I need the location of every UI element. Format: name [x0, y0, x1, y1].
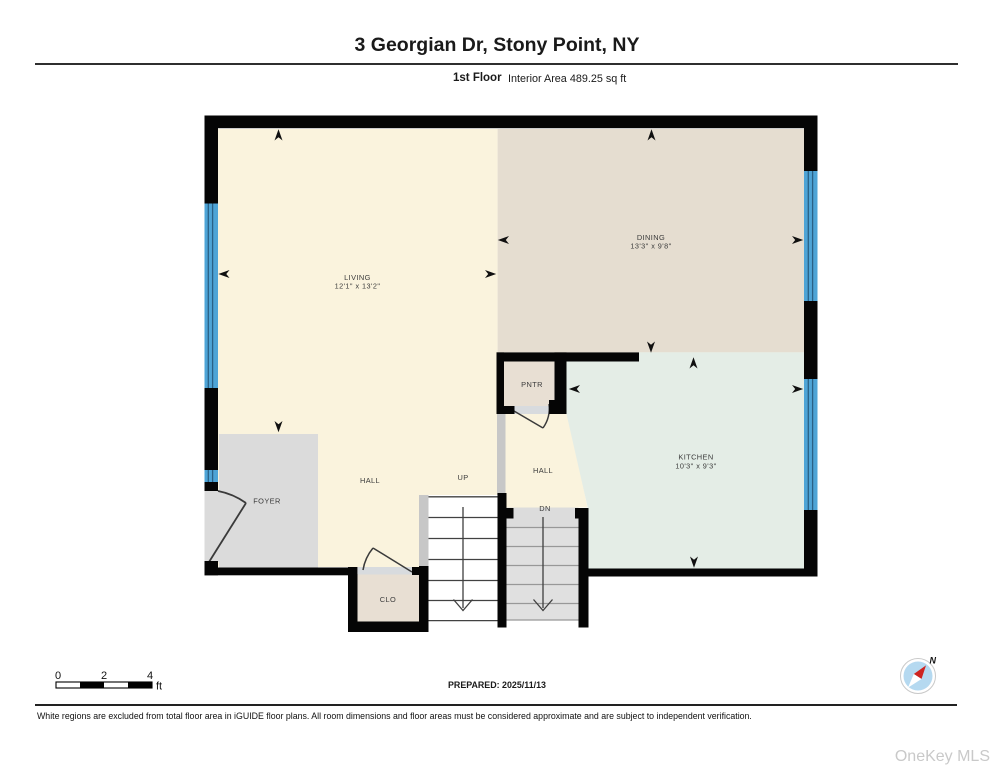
svg-text:FOYER: FOYER — [253, 497, 280, 506]
svg-text:PNTR: PNTR — [521, 380, 543, 389]
svg-text:HALL: HALL — [360, 476, 380, 485]
svg-text:KITCHEN: KITCHEN — [678, 453, 713, 462]
svg-text:N: N — [930, 656, 937, 666]
svg-text:UP: UP — [457, 473, 468, 482]
svg-text:13'3" x 9'8": 13'3" x 9'8" — [630, 242, 671, 251]
svg-text:10'3" x 9'3": 10'3" x 9'3" — [675, 462, 716, 471]
svg-text:CLO: CLO — [380, 595, 396, 604]
svg-text:DN: DN — [539, 504, 550, 513]
svg-text:HALL: HALL — [533, 466, 553, 475]
svg-text:12'1" x 13'2": 12'1" x 13'2" — [335, 282, 381, 291]
